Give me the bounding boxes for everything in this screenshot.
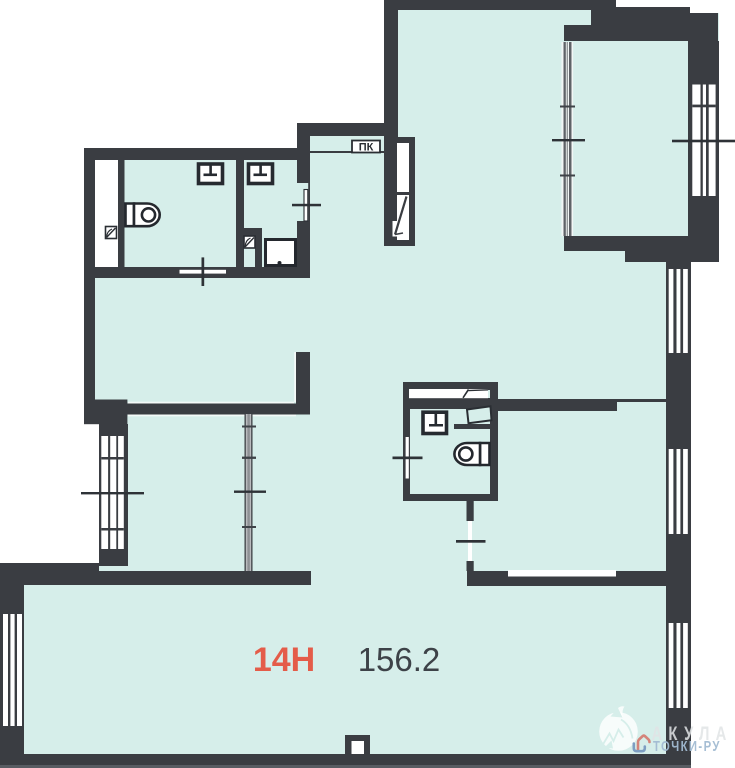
svg-text:ТОЧКИ-РУ: ТОЧКИ-РУ	[653, 738, 721, 755]
svg-text:156.2: 156.2	[358, 641, 441, 678]
svg-text:14Н: 14Н	[253, 641, 315, 679]
svg-text:ПК: ПК	[359, 142, 374, 154]
